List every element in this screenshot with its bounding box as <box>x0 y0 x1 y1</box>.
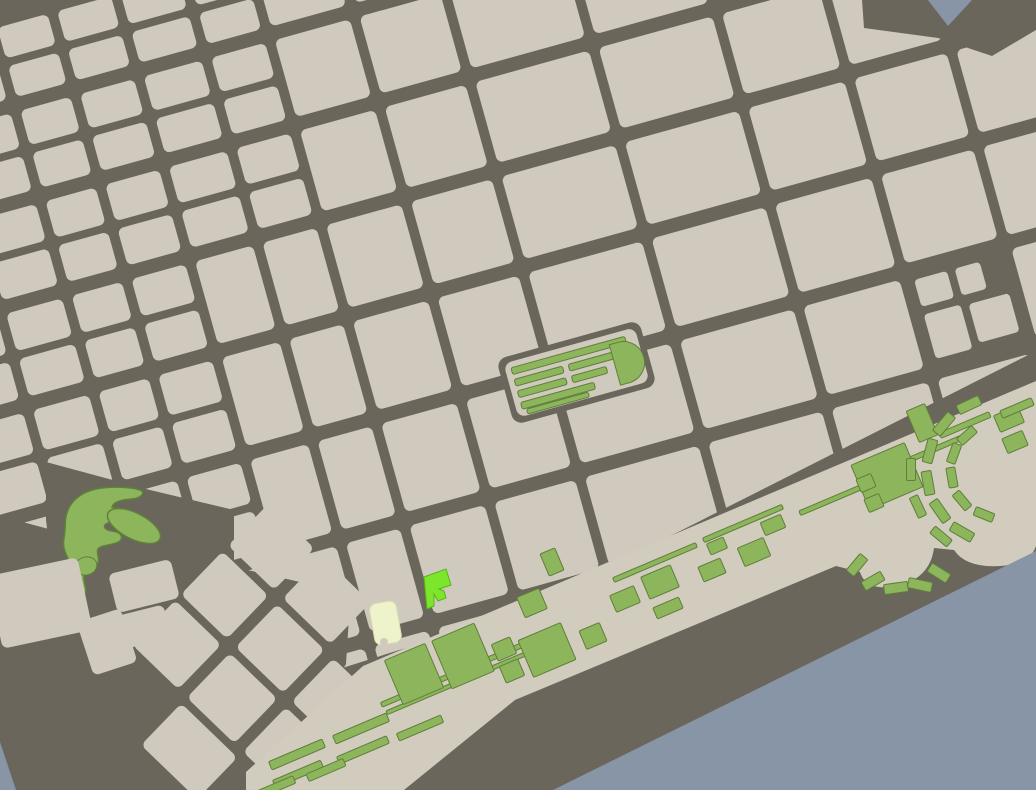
cream-building-notch <box>380 638 388 646</box>
city-map-canvas[interactable] <box>0 0 1036 790</box>
monument-circle <box>809 421 823 435</box>
riverfront-lawn <box>907 459 916 481</box>
map-viewport[interactable] <box>0 0 1036 790</box>
